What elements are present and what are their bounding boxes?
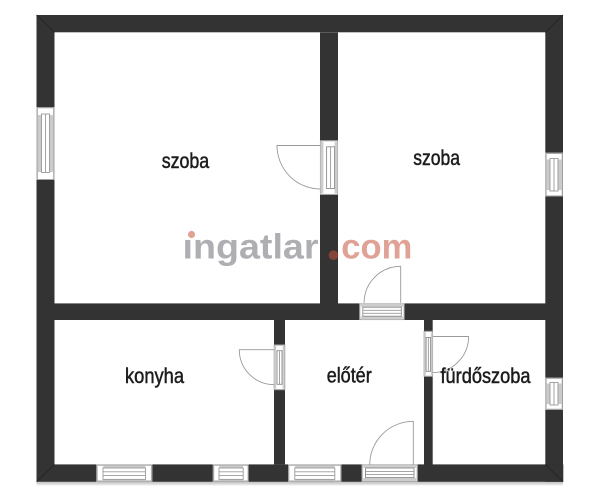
svg-text:com: com xyxy=(341,228,412,267)
svg-text:szoba: szoba xyxy=(162,149,210,173)
svg-text:szoba: szoba xyxy=(413,146,460,170)
svg-text:előtér: előtér xyxy=(327,364,372,388)
svg-text:fürdőszoba: fürdőszoba xyxy=(441,364,531,388)
svg-text:ıngatlar: ıngatlar xyxy=(183,228,319,267)
svg-text:konyha: konyha xyxy=(125,364,184,388)
